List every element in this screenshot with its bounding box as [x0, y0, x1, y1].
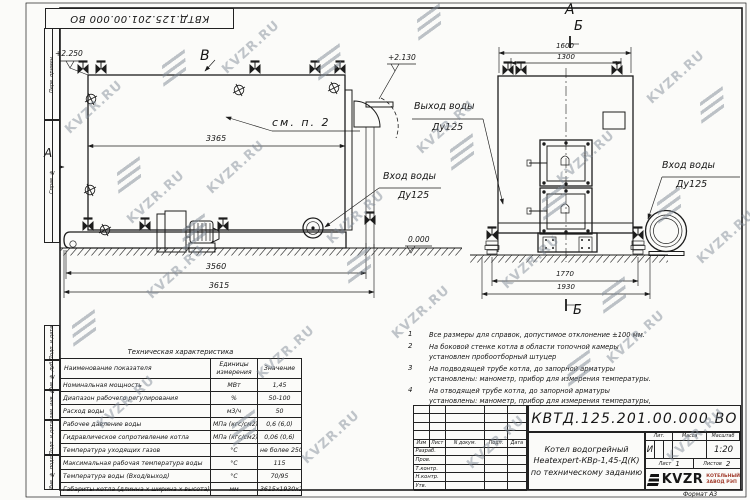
change-cell	[430, 423, 446, 431]
spec-row: Габариты котла (длинна х ширина х высота…	[61, 483, 302, 496]
spec-row: Номинальная мощностьМВт1,45	[61, 379, 302, 392]
titleblock-right-section: Лит. Масса Масштаб И 1:20 Лист1 Листов2 …	[645, 432, 741, 490]
titleblock-signature-grid: Изм Лист N докум. Подп. Дата Разраб. Про…	[413, 405, 528, 490]
side-box-perv-primen: Перв. примен.	[44, 28, 60, 120]
change-cell	[414, 414, 430, 422]
side-box-podp-data-1: Подп. и дата	[44, 325, 60, 360]
inlet-dn-right: Ду125	[676, 179, 707, 190]
titleblock-row-razrab: Разраб.	[414, 448, 527, 457]
spec-col-units: Единицы измерения	[211, 359, 258, 379]
change-cell	[446, 431, 486, 439]
lug-icon	[328, 82, 340, 94]
side-box-inv-dubl: Инв. № дубл.	[44, 360, 60, 390]
change-cell	[430, 414, 446, 422]
change-cell	[446, 423, 486, 431]
boiler-door-lower	[527, 188, 592, 234]
scale-value: 1:20	[707, 441, 740, 459]
lit-mass-scale-values: И 1:20	[646, 441, 740, 459]
valve-icon	[250, 62, 261, 75]
spec-row: Температура воды (Вход/выход)°С70/95	[61, 470, 302, 483]
title-block: Изм Лист N докум. Подп. Дата Разраб. Про…	[413, 405, 741, 490]
valve-icon	[310, 62, 321, 75]
note-item: 2На боковой стенке котла в области топоч…	[402, 342, 654, 362]
spec-row: Рабочее давление водыМПа (кгс/см2)0,6 (6…	[61, 418, 302, 431]
change-cell	[485, 431, 508, 439]
side-box-inv-podl: Инв. № подл.	[44, 455, 60, 490]
spec-row: Диапазон рабочего регулирования%50-100	[61, 392, 302, 405]
valve-icon	[516, 63, 527, 76]
change-cell	[414, 406, 430, 414]
spec-table: Наименование показателя Единицы измерени…	[60, 358, 302, 496]
section-label-b-bottom: Б	[573, 303, 582, 318]
lit-cells: И	[646, 441, 673, 459]
valve-icon	[633, 228, 644, 241]
valve-icon	[487, 228, 498, 241]
side-box-vzam-inv: Взам. инв. №	[44, 390, 60, 420]
change-cell	[508, 431, 527, 439]
change-cell	[430, 431, 446, 439]
inlet-label-left: Вход воды	[383, 171, 436, 182]
kvzr-logo-text: KVZR	[662, 472, 704, 487]
lug-icon	[85, 93, 97, 105]
valve-icon	[96, 62, 107, 75]
change-cell	[430, 406, 446, 414]
boiler-door-upper	[527, 140, 592, 186]
note-item: 1Все размеры для справок, допустимое отк…	[402, 330, 654, 340]
outlet-label: Выход воды	[414, 101, 475, 112]
sheets-total: Листов2	[694, 459, 741, 468]
company-logo-row: KVZR КОТЕЛЬНЫЙЗАВОД РЭП	[646, 469, 740, 490]
sheet-number: Лист1	[646, 459, 694, 468]
spec-table-title: Техническая характеристика	[60, 348, 301, 356]
change-cell	[414, 423, 430, 431]
change-cell	[508, 414, 527, 422]
dim-1770: 1770	[545, 270, 585, 278]
spec-row: Максимальная рабочая температура воды°С1…	[61, 457, 302, 470]
change-cell	[485, 406, 508, 414]
valve-icon	[335, 62, 346, 75]
spec-row: Расход водым3/ч50	[61, 405, 302, 418]
side-box-podp-data-2: Подп. и дата	[44, 420, 60, 455]
spec-row: Температура уходящих газов°Сне более 250	[61, 444, 302, 457]
dim-3615: 3615	[189, 281, 249, 290]
inlet-dn-left: Ду125	[398, 190, 429, 201]
change-cell	[485, 414, 508, 422]
titleblock-header-row: Изм Лист N докум. Подп. Дата	[414, 440, 527, 448]
titleblock-row-tkontr: Т.контр.	[414, 465, 527, 474]
spec-row: Гидравлическое сопротивление котлаМПа (к…	[61, 431, 302, 444]
titleblock-row-utv: Утв.	[414, 482, 527, 491]
lug-icon	[84, 184, 96, 196]
valve-icon	[503, 63, 514, 76]
dim-3560: 3560	[186, 262, 246, 271]
change-cell	[414, 431, 430, 439]
spec-table-block: Техническая характеристика Наименование …	[60, 348, 301, 496]
inlet-flange-right	[646, 211, 687, 256]
dim-3365: 3365	[190, 134, 242, 143]
kvzr-logo-icon	[646, 473, 659, 487]
elevation-zero: 0.000	[408, 235, 429, 244]
company-name: КОТЕЛЬНЫЙЗАВОД РЭП	[706, 474, 740, 485]
elevation-right: +2.130	[388, 53, 416, 62]
drawing-sheet: КВТД.125.201.00.000 ВО Перв. примен. Спр…	[0, 0, 750, 500]
spec-col-value: Значение	[258, 359, 302, 379]
view-label-a-top: А	[565, 2, 575, 18]
outlet-dn: Ду125	[432, 122, 463, 133]
change-cell	[446, 406, 486, 414]
titleblock-row-nkontr: Н.контр.	[414, 473, 527, 482]
valve-icon	[218, 219, 229, 232]
change-cell	[446, 414, 486, 422]
lug-icon	[233, 84, 245, 96]
lit-mass-scale-labels: Лит. Масса Масштаб	[646, 433, 740, 441]
document-designation: КВТД.125.201.00.000 ВО	[528, 405, 741, 432]
spec-col-name: Наименование показателя	[61, 359, 211, 379]
change-cell	[485, 423, 508, 431]
dim-1930: 1930	[546, 283, 586, 291]
dim-1600: 1600	[545, 42, 585, 50]
left-view-dimensions	[64, 146, 374, 298]
elevation-top: +2.250	[55, 49, 83, 58]
elevation-marks-left	[57, 61, 432, 253]
view-label-b: В	[200, 48, 210, 64]
change-cell	[508, 423, 527, 431]
inlet-label-right: Вход воды	[662, 160, 715, 171]
titleblock-row-prov: Пров.	[414, 456, 527, 465]
change-cell	[508, 406, 527, 414]
mass-cell	[673, 441, 707, 459]
view-label-a-left: А	[44, 146, 52, 160]
see-note-ref: см. п. 2	[272, 116, 331, 129]
side-box-sprav: Справ. №	[44, 120, 60, 243]
titleblock-change-grid	[414, 406, 527, 440]
dim-1300: 1300	[546, 53, 586, 61]
format-note: Формат А3	[683, 491, 717, 498]
document-name: Котел водогрейный Heatexpert-КВр-1,45-Д(…	[528, 432, 645, 490]
valve-icon	[78, 62, 89, 75]
top-stamp: КВТД.125.201.00.000 ВО	[45, 8, 234, 29]
valve-icon	[140, 219, 151, 232]
section-label-b-top: Б	[574, 19, 583, 34]
sheets-row: Лист1 Листов2	[646, 459, 740, 469]
note-item: 3На подводящей трубе котла, до запорной …	[402, 364, 654, 384]
